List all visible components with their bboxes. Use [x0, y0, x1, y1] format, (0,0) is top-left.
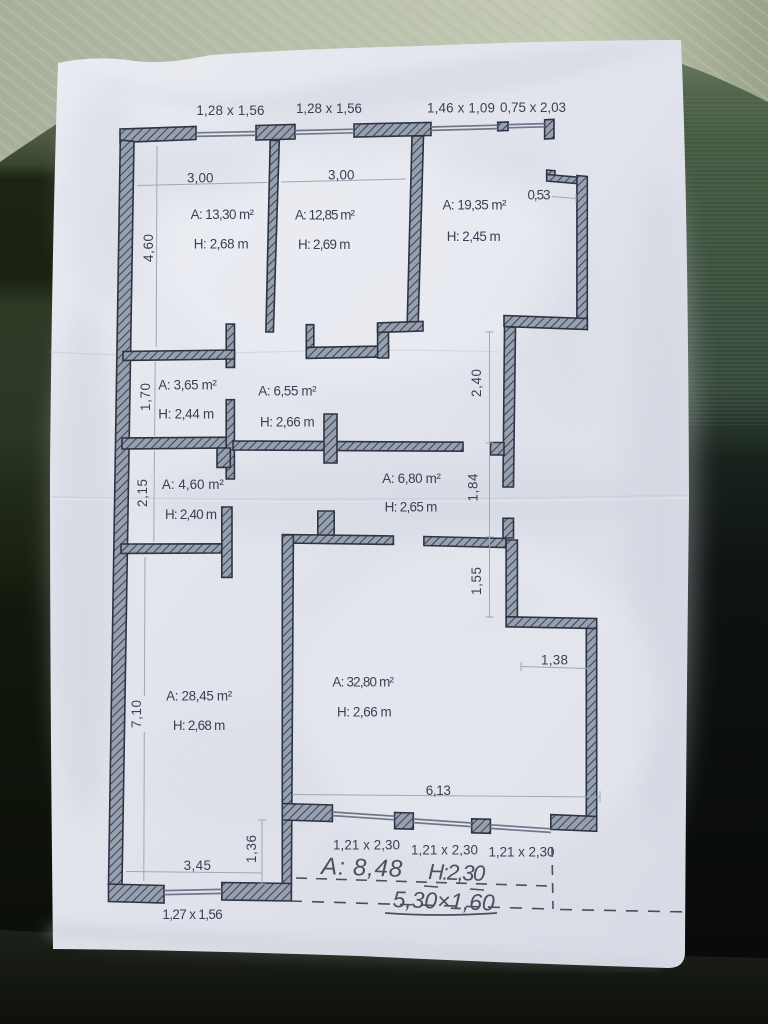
svg-text:3,00: 3,00	[187, 171, 214, 186]
svg-text:1,27 x 1,56: 1,27 x 1,56	[162, 907, 222, 922]
svg-text:1,70: 1,70	[138, 383, 153, 411]
svg-text:H: 2,45 m: H: 2,45 m	[447, 229, 501, 244]
svg-text:A: 4,60 m²: A: 4,60 m²	[162, 477, 225, 492]
svg-text:3,45: 3,45	[184, 858, 211, 873]
svg-text:A: 12,85 m²: A: 12,85 m²	[295, 208, 356, 223]
svg-text:0,53: 0,53	[528, 188, 551, 203]
svg-text:1,28 x 1,56: 1,28 x 1,56	[296, 101, 362, 116]
svg-text:A: 13,30 m²: A: 13,30 m²	[191, 207, 255, 222]
svg-text:6,13: 6,13	[426, 783, 451, 798]
svg-text:1,38: 1,38	[541, 653, 568, 668]
svg-text:H: 2,66 m: H: 2,66 m	[260, 415, 315, 430]
svg-text:1,28 x 1,56: 1,28 x 1,56	[196, 103, 264, 118]
svg-text:A: 3,65 m²: A: 3,65 m²	[158, 378, 217, 393]
svg-text:4,60: 4,60	[141, 234, 156, 262]
svg-text:2,15: 2,15	[135, 479, 150, 507]
svg-text:A: 32,80 m²: A: 32,80 m²	[332, 675, 394, 690]
svg-text:A: 28,45 m²: A: 28,45 m²	[166, 688, 233, 703]
svg-text:H: 2,69 m: H: 2,69 m	[298, 237, 350, 252]
svg-text:A: 6,80 m²: A: 6,80 m²	[382, 471, 441, 486]
svg-text:H: 2,40 m: H: 2,40 m	[165, 507, 217, 522]
svg-text:3,00: 3,00	[328, 168, 355, 183]
svg-text:A: 6,55 m²: A: 6,55 m²	[258, 384, 317, 399]
svg-text:1,21 x 2,30: 1,21 x 2,30	[411, 843, 478, 858]
svg-text:0,75 x 2,03: 0,75 x 2,03	[500, 100, 566, 115]
svg-text:1,84: 1,84	[466, 473, 481, 502]
svg-text:1,46 x 1,09: 1,46 x 1,09	[427, 101, 495, 116]
svg-text:7,10: 7,10	[129, 700, 144, 728]
svg-text:A: 19,35 m²: A: 19,35 m²	[443, 198, 508, 213]
svg-text:H: 2,65 m: H: 2,65 m	[385, 499, 438, 514]
svg-text:1,36: 1,36	[244, 835, 259, 863]
svg-text:A: 8,48: A: 8,48	[319, 853, 404, 883]
svg-text:1,55: 1,55	[469, 567, 484, 595]
svg-text:H: 2,66 m: H: 2,66 m	[337, 704, 392, 719]
svg-text:2,40: 2,40	[469, 369, 484, 397]
svg-text:H: 2,68 m: H: 2,68 m	[173, 718, 225, 733]
svg-text:H: 2,68 m: H: 2,68 m	[194, 237, 249, 252]
svg-text:H: 2,44 m: H: 2,44 m	[158, 407, 214, 422]
svg-text:1,21 x 2,30: 1,21 x 2,30	[489, 845, 555, 860]
svg-text:1,21 x 2,30: 1,21 x 2,30	[333, 838, 400, 853]
